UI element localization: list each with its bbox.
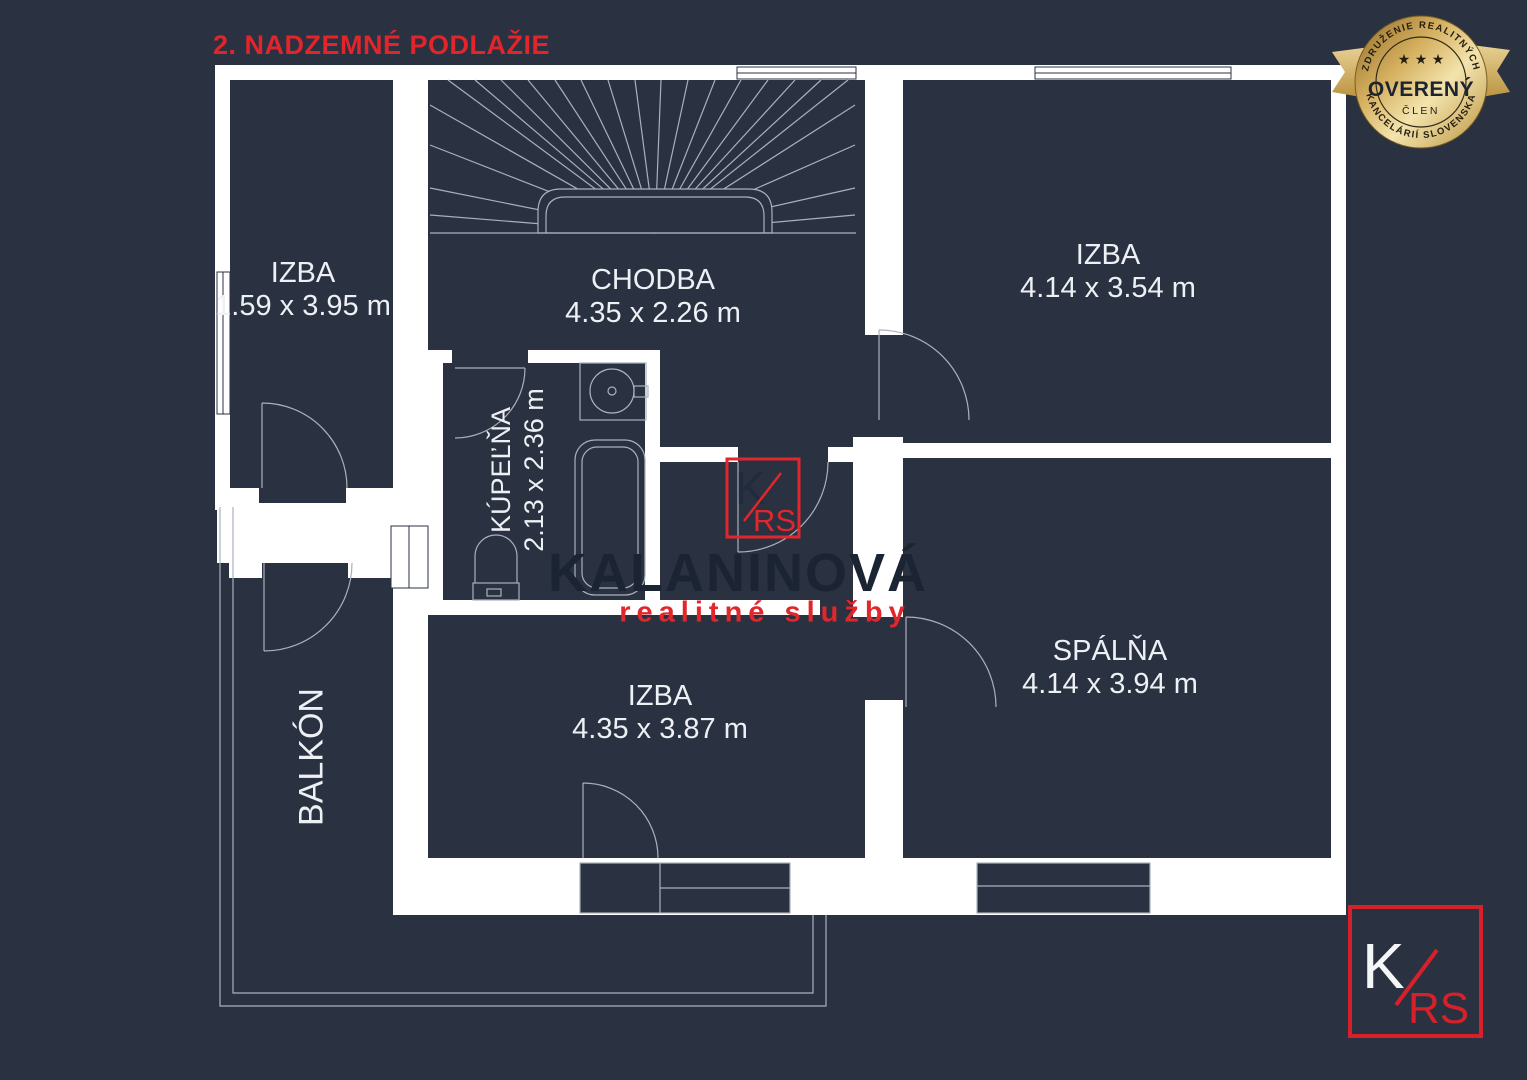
room-label-kupelna: KÚPEĽŇA 2.13 x 2.36 m	[485, 388, 551, 552]
walls	[215, 65, 1346, 915]
window-balcony-door-combo	[580, 863, 790, 913]
window-top-middle	[737, 67, 856, 79]
room-label-balkon: BALKÓN	[296, 688, 329, 826]
badge-subtitle: ČLEN	[1402, 104, 1440, 117]
window-top-right	[1035, 67, 1231, 79]
badge-stars: ★ ★ ★	[1398, 52, 1445, 68]
room-label-spalna: SPÁLŇA 4.14 x 3.94 m	[1022, 635, 1198, 701]
watermark-tagline: realitné služby	[619, 597, 910, 630]
krs-br-rs: RS	[1408, 984, 1469, 1033]
sink	[580, 363, 648, 420]
room-label-izba-bottom: IZBA 4.35 x 3.87 m	[572, 680, 748, 746]
krs-center-rs: RS	[753, 503, 796, 538]
page-title: 2. NADZEMNÉ PODLAŽIE	[213, 30, 550, 61]
stair-handrail	[538, 189, 772, 233]
room-label-izba-top-right: IZBA 4.14 x 3.54 m	[1020, 239, 1196, 305]
door-balcony-corridor	[264, 563, 352, 651]
window-spalna	[977, 863, 1150, 913]
floorplan-drawing: K RS K RS ZDRUŽENIE REALITNÝCH KANCELÁRI…	[0, 0, 1527, 1080]
watermark-brand-name: KALANINOVÁ	[548, 542, 928, 604]
room-label-izba-left: IZBA 1.59 x 3.95 m	[215, 257, 391, 323]
krs-logo-bottom-right: K RS	[1350, 907, 1481, 1036]
verified-member-badge: ZDRUŽENIE REALITNÝCH KANCELÁRIÍ SLOVENSK…	[1332, 16, 1510, 148]
badge-title: OVERENÝ	[1368, 77, 1474, 101]
krs-br-k: K	[1362, 930, 1405, 1002]
door-izba-top-right	[879, 330, 969, 420]
shaft-box	[391, 526, 428, 588]
stairs	[430, 80, 856, 233]
room-label-chodba: CHODBA 4.35 x 2.26 m	[565, 264, 741, 330]
door-izba-bottom-balcony	[583, 783, 658, 858]
door-spalna	[906, 617, 996, 707]
floorplan-page: K RS K RS ZDRUŽENIE REALITNÝCH KANCELÁRI…	[0, 0, 1527, 1080]
door-izba-left	[262, 403, 347, 488]
